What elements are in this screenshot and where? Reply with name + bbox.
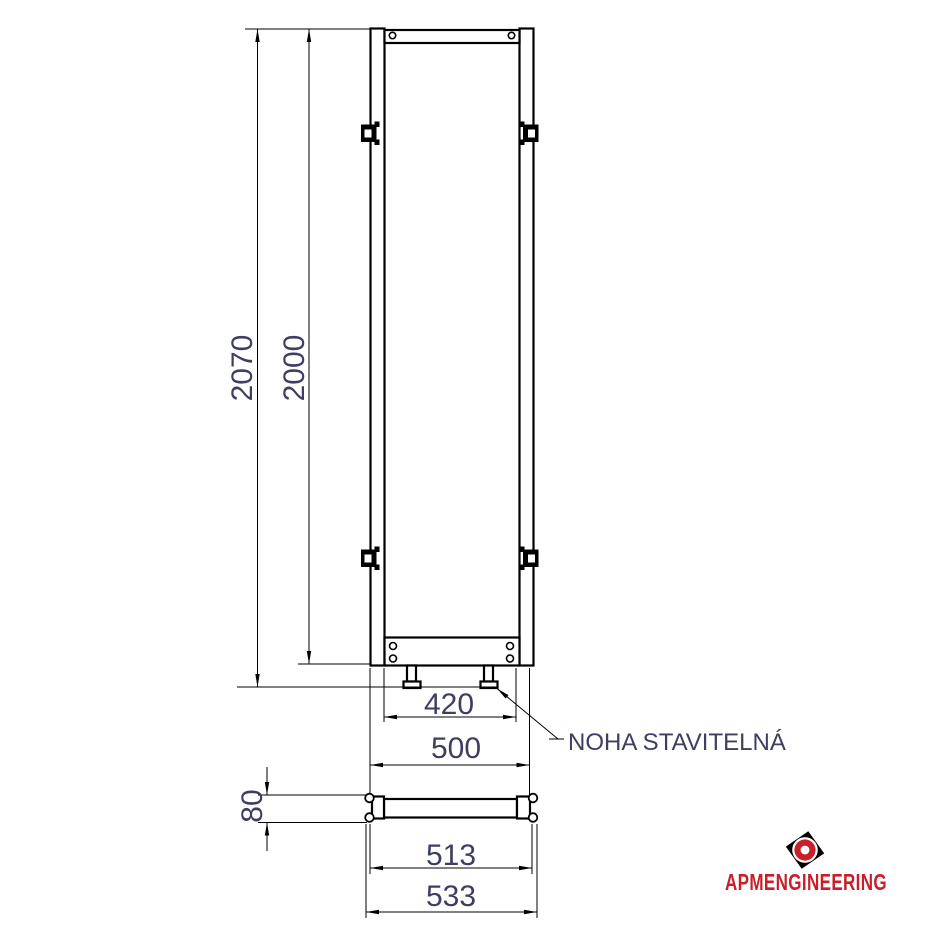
logo-mark-icon [782,828,827,872]
screw-hole-icon [507,643,514,650]
bottom-crossbar [385,638,520,666]
dim-base-outer-width-label: 533 [426,880,476,913]
foot-bolt-icon [365,813,374,822]
dim-outer-width-label: 500 [431,732,481,765]
technical-drawing-canvas: 2070 2000 420 500 80 [0,0,941,939]
bottom-view [365,794,537,822]
left-adjustable-foot [404,666,421,689]
frame-technical-drawing: 2070 2000 420 500 80 [0,0,941,939]
screw-hole-icon [390,655,397,662]
base-profile [384,799,517,818]
dim-total-height-label: 2070 [226,335,259,402]
base-end-right [517,797,530,819]
dim-frame-height-label: 2000 [278,335,311,402]
foot-bolt-icon [529,813,538,822]
dim-base-height-label: 80 [236,789,269,822]
screw-hole-icon [390,643,397,650]
company-logo: APMENGINEERING [725,828,887,896]
leader-adjustable-foot: NOHA STAVITELNÁ [497,689,786,757]
dim-base-inner-width-label: 513 [426,839,476,872]
top-crossbar [385,30,520,43]
dimension-inner-width: 420 [384,668,516,722]
adjustable-foot-label: NOHA STAVITELNÁ [568,729,786,756]
screw-hole-icon [507,655,514,662]
screw-hole-icon [508,32,514,38]
right-adjustable-foot [481,666,498,689]
dimension-base-height: 80 [236,767,367,851]
dimension-frame-height: 2000 [278,29,371,664]
logo-wordmark: APMENGINEERING [725,871,887,896]
dim-inner-width-label: 420 [424,688,474,721]
front-view [361,29,539,689]
dimension-base-inner-width: 513 [370,824,532,874]
screw-hole-icon [389,32,395,38]
